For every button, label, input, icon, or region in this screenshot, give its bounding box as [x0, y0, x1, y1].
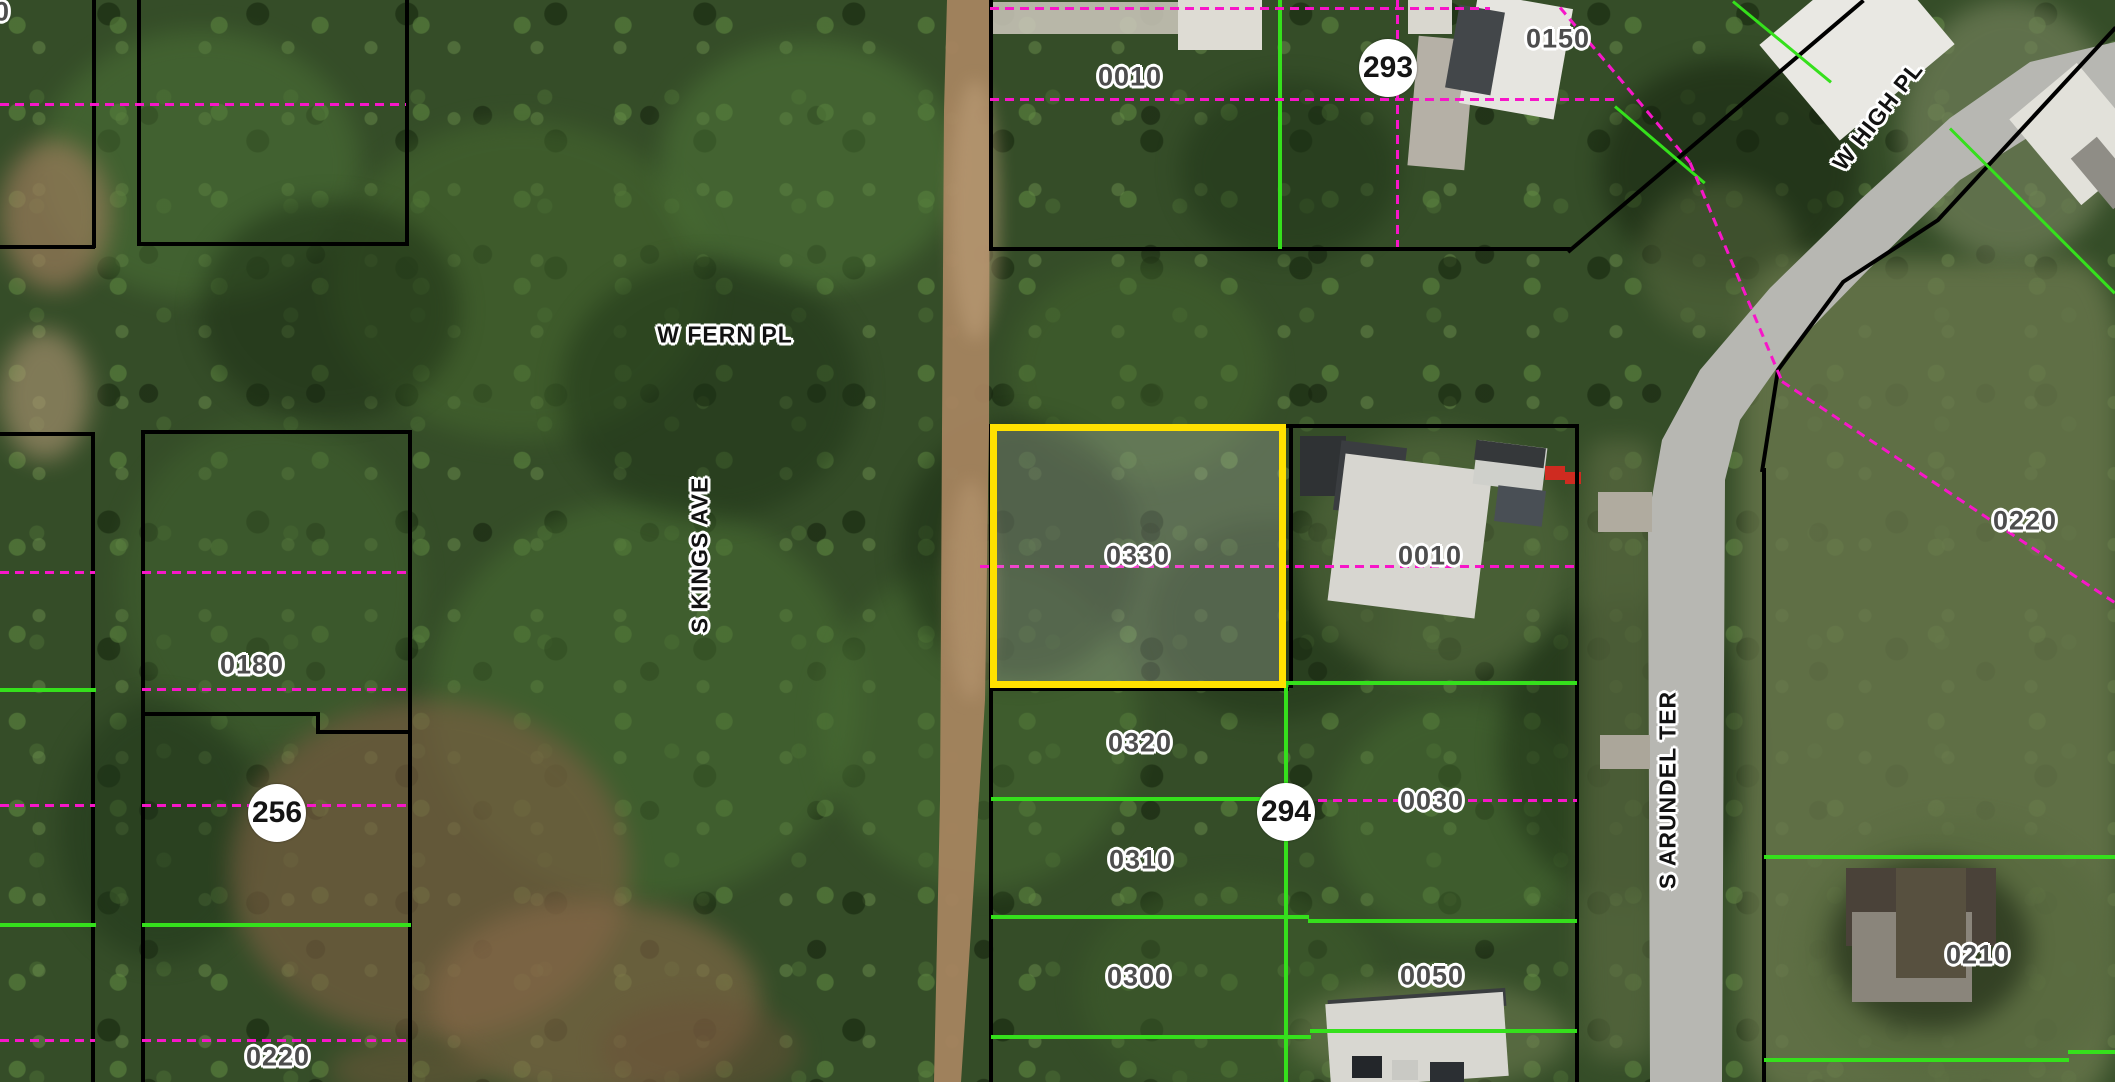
parcel-number-label: 0220 — [1993, 506, 2057, 537]
street-name-label: S KINGS AVE — [687, 477, 714, 634]
parcel-boundary-line — [989, 0, 993, 250]
parcel-boundary-line — [0, 245, 95, 249]
vehicle — [1430, 1062, 1464, 1082]
parcel-boundary-line — [316, 730, 411, 734]
parcel-boundary-line — [1762, 468, 1766, 1082]
lot-boundary-line — [991, 1035, 1311, 1039]
lot-boundary-line — [1310, 1029, 1577, 1033]
parcel-boundary-line — [405, 0, 409, 245]
parcel-number-label: 0300 — [1107, 962, 1171, 993]
subdivision-boundary-line — [990, 98, 1620, 101]
subdivision-boundary-line — [0, 804, 95, 807]
section-marker: 256 — [248, 784, 306, 842]
parcel-boundary-line — [92, 0, 96, 248]
subdivision-boundary-line — [0, 1039, 95, 1042]
tree-shadow-patch — [60, 700, 260, 960]
parcel-number-label: 0050 — [1400, 961, 1464, 992]
parcel-boundary-line — [141, 430, 145, 1082]
building-roof — [1408, 0, 1452, 34]
vehicle — [1392, 1060, 1418, 1080]
parcel-boundary-line — [1289, 426, 1293, 688]
parcel-number-label: 0 — [0, 0, 10, 28]
lot-boundary-line — [1284, 681, 1288, 1082]
subdivision-boundary-line — [1396, 0, 1399, 247]
tree-canopy-patch — [660, 40, 960, 290]
parcel-boundary-line — [137, 0, 141, 245]
cleared-dirt-patch — [0, 330, 90, 460]
subdivision-boundary-line — [0, 571, 95, 574]
lot-boundary-line — [1764, 855, 2115, 859]
lot-boundary-line — [1278, 0, 1282, 249]
mobile-home-roof — [1328, 454, 1493, 619]
subdivision-boundary-line — [142, 571, 410, 574]
parcel-number-label: 0030 — [1400, 786, 1464, 817]
parcel-number-label: 0180 — [220, 650, 284, 681]
parcel-number-label: 0210 — [1946, 940, 2010, 971]
parcel-boundary-line — [0, 432, 94, 436]
lot-boundary-line — [991, 797, 1286, 801]
driveway — [1598, 492, 1652, 532]
vehicle — [1352, 1056, 1382, 1078]
red-object — [1545, 466, 1565, 480]
street-name-label: S ARUNDEL TER — [1655, 691, 1682, 889]
map-canvas[interactable]: 0010015003300010032000300310030000500180… — [0, 0, 2115, 1082]
subdivision-boundary-line — [0, 103, 406, 106]
lot-boundary-line — [1285, 681, 1577, 685]
parcel-number-label: 0010 — [1398, 541, 1462, 572]
parcel-number-label: 0220 — [246, 1042, 310, 1073]
parcel-number-label: 0010 — [1098, 62, 1162, 93]
parcel-number-label: 0310 — [1109, 845, 1173, 876]
parcel-boundary-line — [137, 242, 409, 246]
parcel-boundary-line — [408, 430, 412, 1082]
subdivision-boundary-line — [142, 688, 410, 691]
lot-boundary-line — [991, 915, 1309, 919]
lot-boundary-line — [2068, 1050, 2115, 1054]
street-name-label: W FERN PL — [657, 322, 793, 349]
parcel-boundary-line — [1575, 426, 1579, 1082]
section-marker: 293 — [1359, 39, 1417, 97]
parcel-number-label: 0150 — [1526, 24, 1590, 55]
parcel-number-label: 0330 — [1106, 541, 1170, 572]
lot-boundary-line — [0, 688, 96, 692]
lot-boundary-line — [142, 923, 411, 927]
vehicle — [1494, 485, 1546, 527]
lot-boundary-line — [1764, 1058, 2069, 1062]
tree-shadow-patch — [1180, 80, 1400, 260]
section-marker: 294 — [1257, 783, 1315, 841]
lot-boundary-line — [0, 923, 96, 927]
parcel-boundary-line — [141, 430, 412, 434]
tree-shadow-patch — [200, 200, 460, 420]
subdivision-boundary-line — [990, 7, 1490, 10]
parcel-number-label: 0320 — [1108, 728, 1172, 759]
dirt-road-highlight — [948, 480, 994, 700]
parcel-boundary-line — [91, 432, 95, 1082]
parcel-boundary-line — [141, 712, 319, 716]
lot-boundary-line — [1308, 919, 1577, 923]
driveway — [1600, 735, 1650, 769]
